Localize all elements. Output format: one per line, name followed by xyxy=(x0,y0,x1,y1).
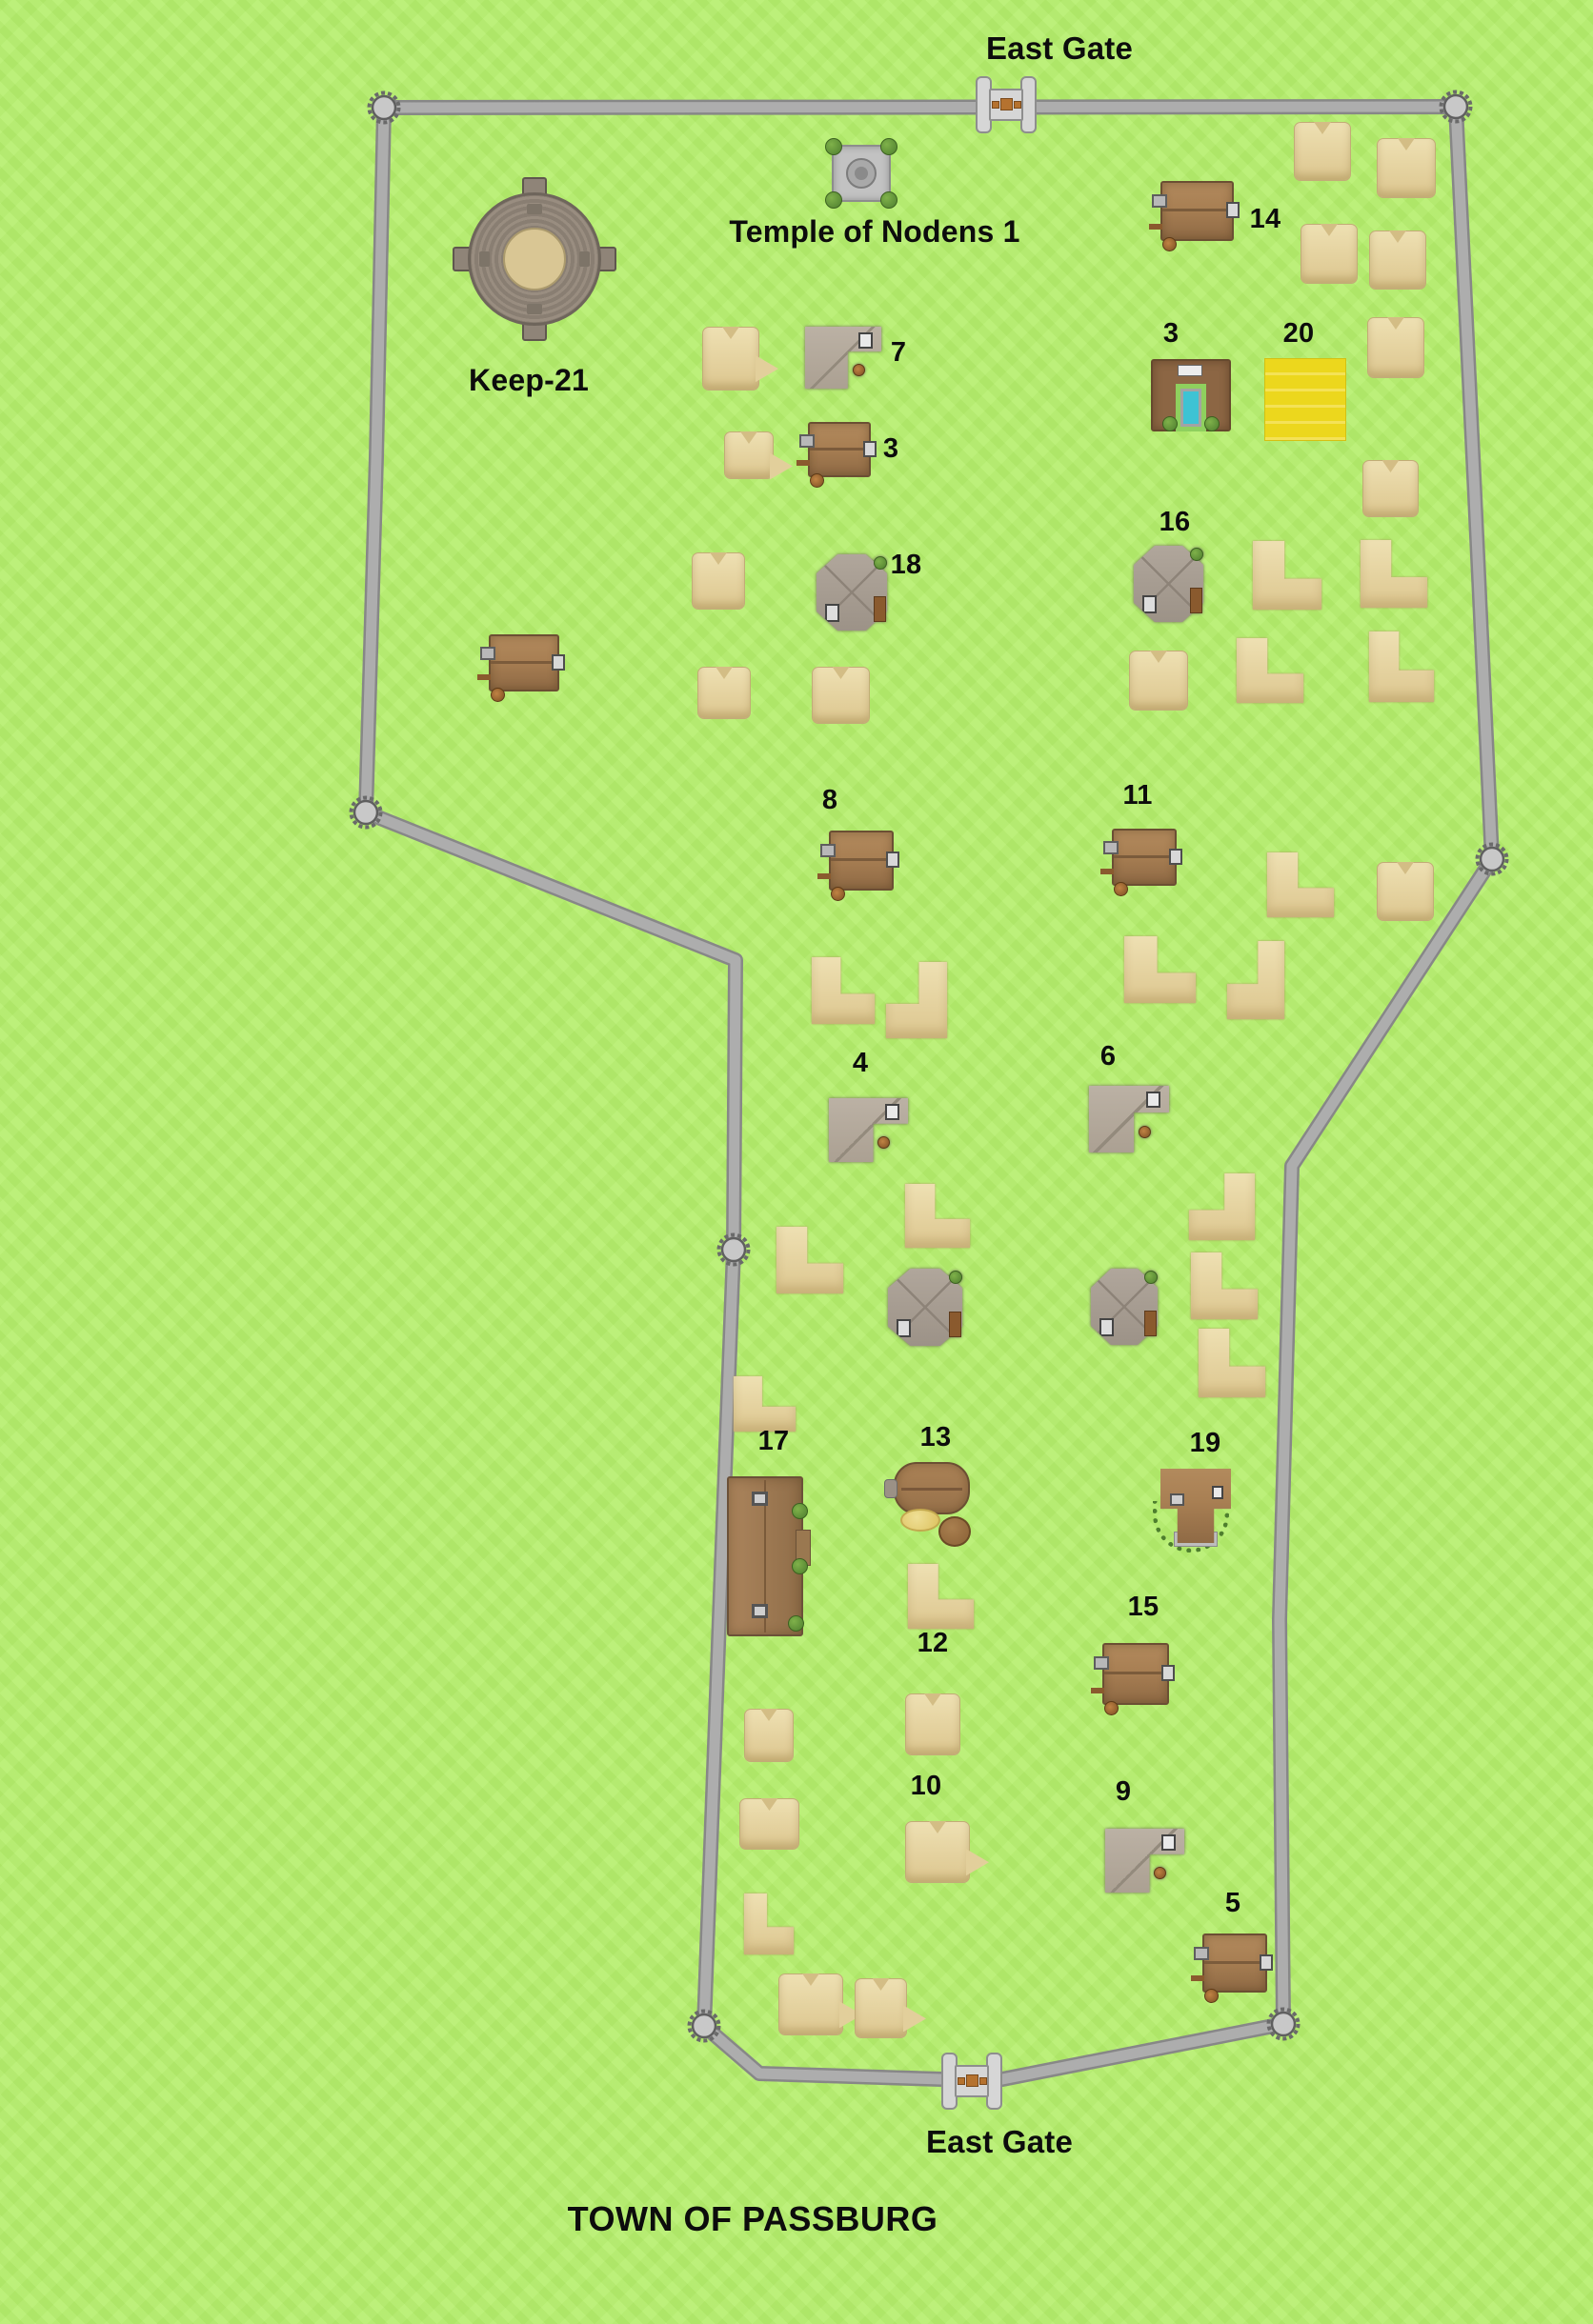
building-number-label: 10 xyxy=(911,1773,942,1800)
building-number-label: 16 xyxy=(1159,509,1191,536)
building-number-label: 5 xyxy=(1225,1890,1240,1917)
labels-layer: East GateTemple of Nodens 1Keep-21147332… xyxy=(0,0,1593,2324)
building-number-label: 3 xyxy=(1163,320,1179,348)
building-number-label: 20 xyxy=(1283,320,1315,348)
building-number-label: 7 xyxy=(891,339,906,367)
building-number-label: 13 xyxy=(920,1424,952,1452)
building-number-label: 19 xyxy=(1190,1430,1221,1457)
town-map: East GateTemple of Nodens 1Keep-21147332… xyxy=(0,0,1593,2324)
building-number-label: 4 xyxy=(853,1050,868,1077)
place-name-label: Keep-21 xyxy=(469,365,589,395)
building-number-label: 15 xyxy=(1128,1593,1159,1621)
building-number-label: 12 xyxy=(917,1630,949,1657)
building-number-label: 6 xyxy=(1100,1043,1116,1071)
building-number-label: 14 xyxy=(1250,206,1281,233)
place-name-label: East Gate xyxy=(986,32,1133,64)
building-number-label: 11 xyxy=(1122,782,1152,810)
building-number-label: 17 xyxy=(758,1428,790,1455)
building-number-label: 9 xyxy=(1116,1778,1131,1806)
building-number-label: 8 xyxy=(822,787,837,814)
map-title: TOWN OF PASSBURG xyxy=(568,2202,938,2236)
building-number-label: 18 xyxy=(891,551,922,579)
building-number-label: 3 xyxy=(883,435,898,463)
place-name-label: East Gate xyxy=(926,2126,1073,2157)
place-name-label: Temple of Nodens 1 xyxy=(729,216,1019,247)
